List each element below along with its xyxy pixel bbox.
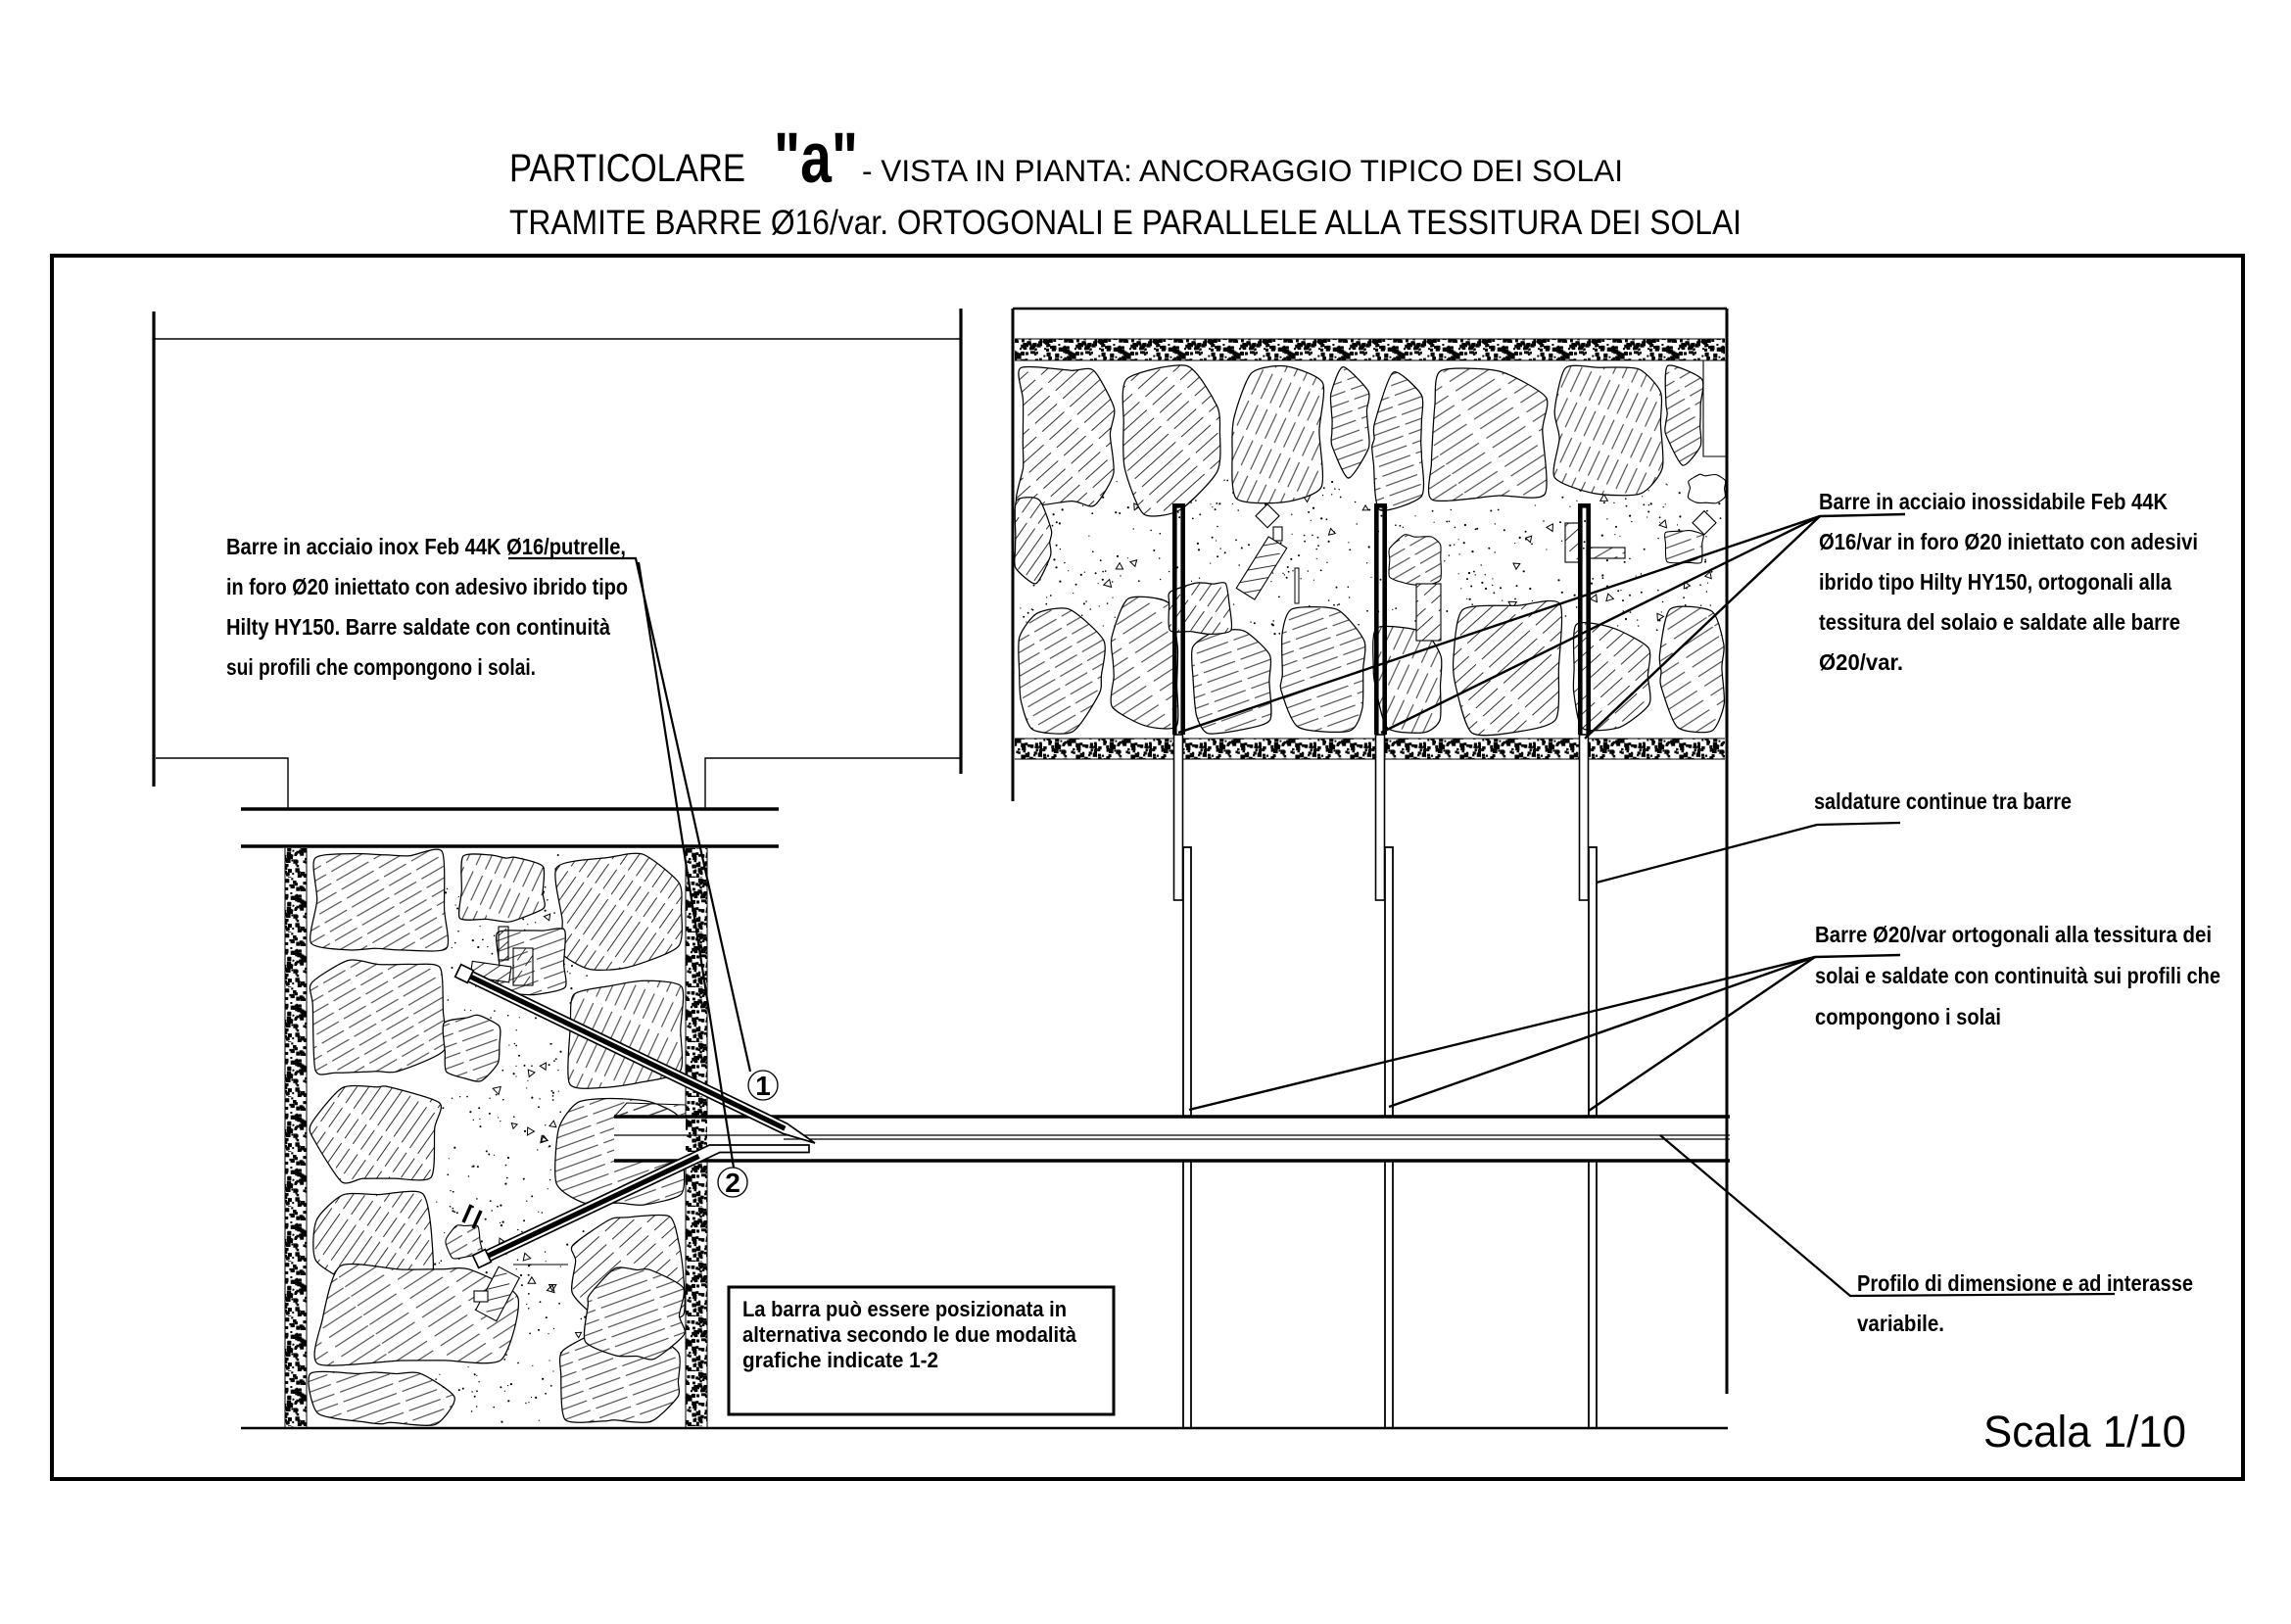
svg-text:saldature continue tra barre: saldature continue tra barre	[1814, 788, 2072, 814]
svg-text:- VISTA IN PIANTA: ANCORAGGIO: - VISTA IN PIANTA: ANCORAGGIO TIPICO DEI…	[862, 153, 1623, 188]
svg-text:2: 2	[725, 1168, 740, 1198]
svg-text:alternativa secondo le due mod: alternativa secondo le due modalità	[742, 1322, 1076, 1347]
svg-text:TRAMITE BARRE Ø16/var. ORTOGON: TRAMITE BARRE Ø16/var. ORTOGONALI E PARA…	[509, 204, 1742, 242]
svg-text:Barre Ø20/var ortogonali alla: Barre Ø20/var ortogonali alla tessitura …	[1815, 922, 2212, 947]
svg-text:tessitura del solaio e saldate: tessitura del solaio e saldate alle barr…	[1819, 609, 2180, 635]
svg-text:Barre in acciaio inossidabile: Barre in acciaio inossidabile Feb 44K	[1819, 489, 2168, 514]
svg-text:grafiche indicate 1-2: grafiche indicate 1-2	[742, 1348, 938, 1372]
svg-text:1: 1	[755, 1071, 771, 1101]
svg-text:compongono i solai: compongono i solai	[1815, 1004, 2001, 1029]
svg-text:Ø20/var.: Ø20/var.	[1819, 649, 1903, 675]
svg-text:solai e saldate con continuità: solai e saldate con continuità sui profi…	[1815, 963, 2220, 988]
svg-text:Hilty HY150. Barre saldate con: Hilty HY150. Barre saldate con continuit…	[226, 614, 611, 640]
svg-text:La barra può essere posizionat: La barra può essere posizionata in	[742, 1297, 1067, 1321]
svg-text:Ø16/var in foro Ø20 iniettato: Ø16/var in foro Ø20 iniettato con adesiv…	[1819, 529, 2198, 554]
svg-text:Scala 1/10: Scala 1/10	[1983, 1407, 2186, 1457]
svg-text:PARTICOLARE: PARTICOLARE	[509, 147, 745, 190]
svg-text:sui profili che compongono i s: sui profili che compongono i solai.	[226, 654, 536, 680]
svg-text:Profilo di dimensione e ad int: Profilo di dimensione e ad interasse	[1857, 1270, 2193, 1296]
svg-text:Barre in acciaio inox Feb 44K: Barre in acciaio inox Feb 44K Ø16/putrel…	[226, 534, 626, 559]
svg-text:in foro Ø20 iniettato con ades: in foro Ø20 iniettato con adesivo ibrido…	[226, 574, 628, 599]
svg-text:ibrido tipo Hilty HY150, ortog: ibrido tipo Hilty HY150, ortogonali alla	[1819, 569, 2172, 595]
svg-text:variabile.: variabile.	[1857, 1311, 1944, 1336]
svg-text:"a": "a"	[774, 119, 858, 198]
